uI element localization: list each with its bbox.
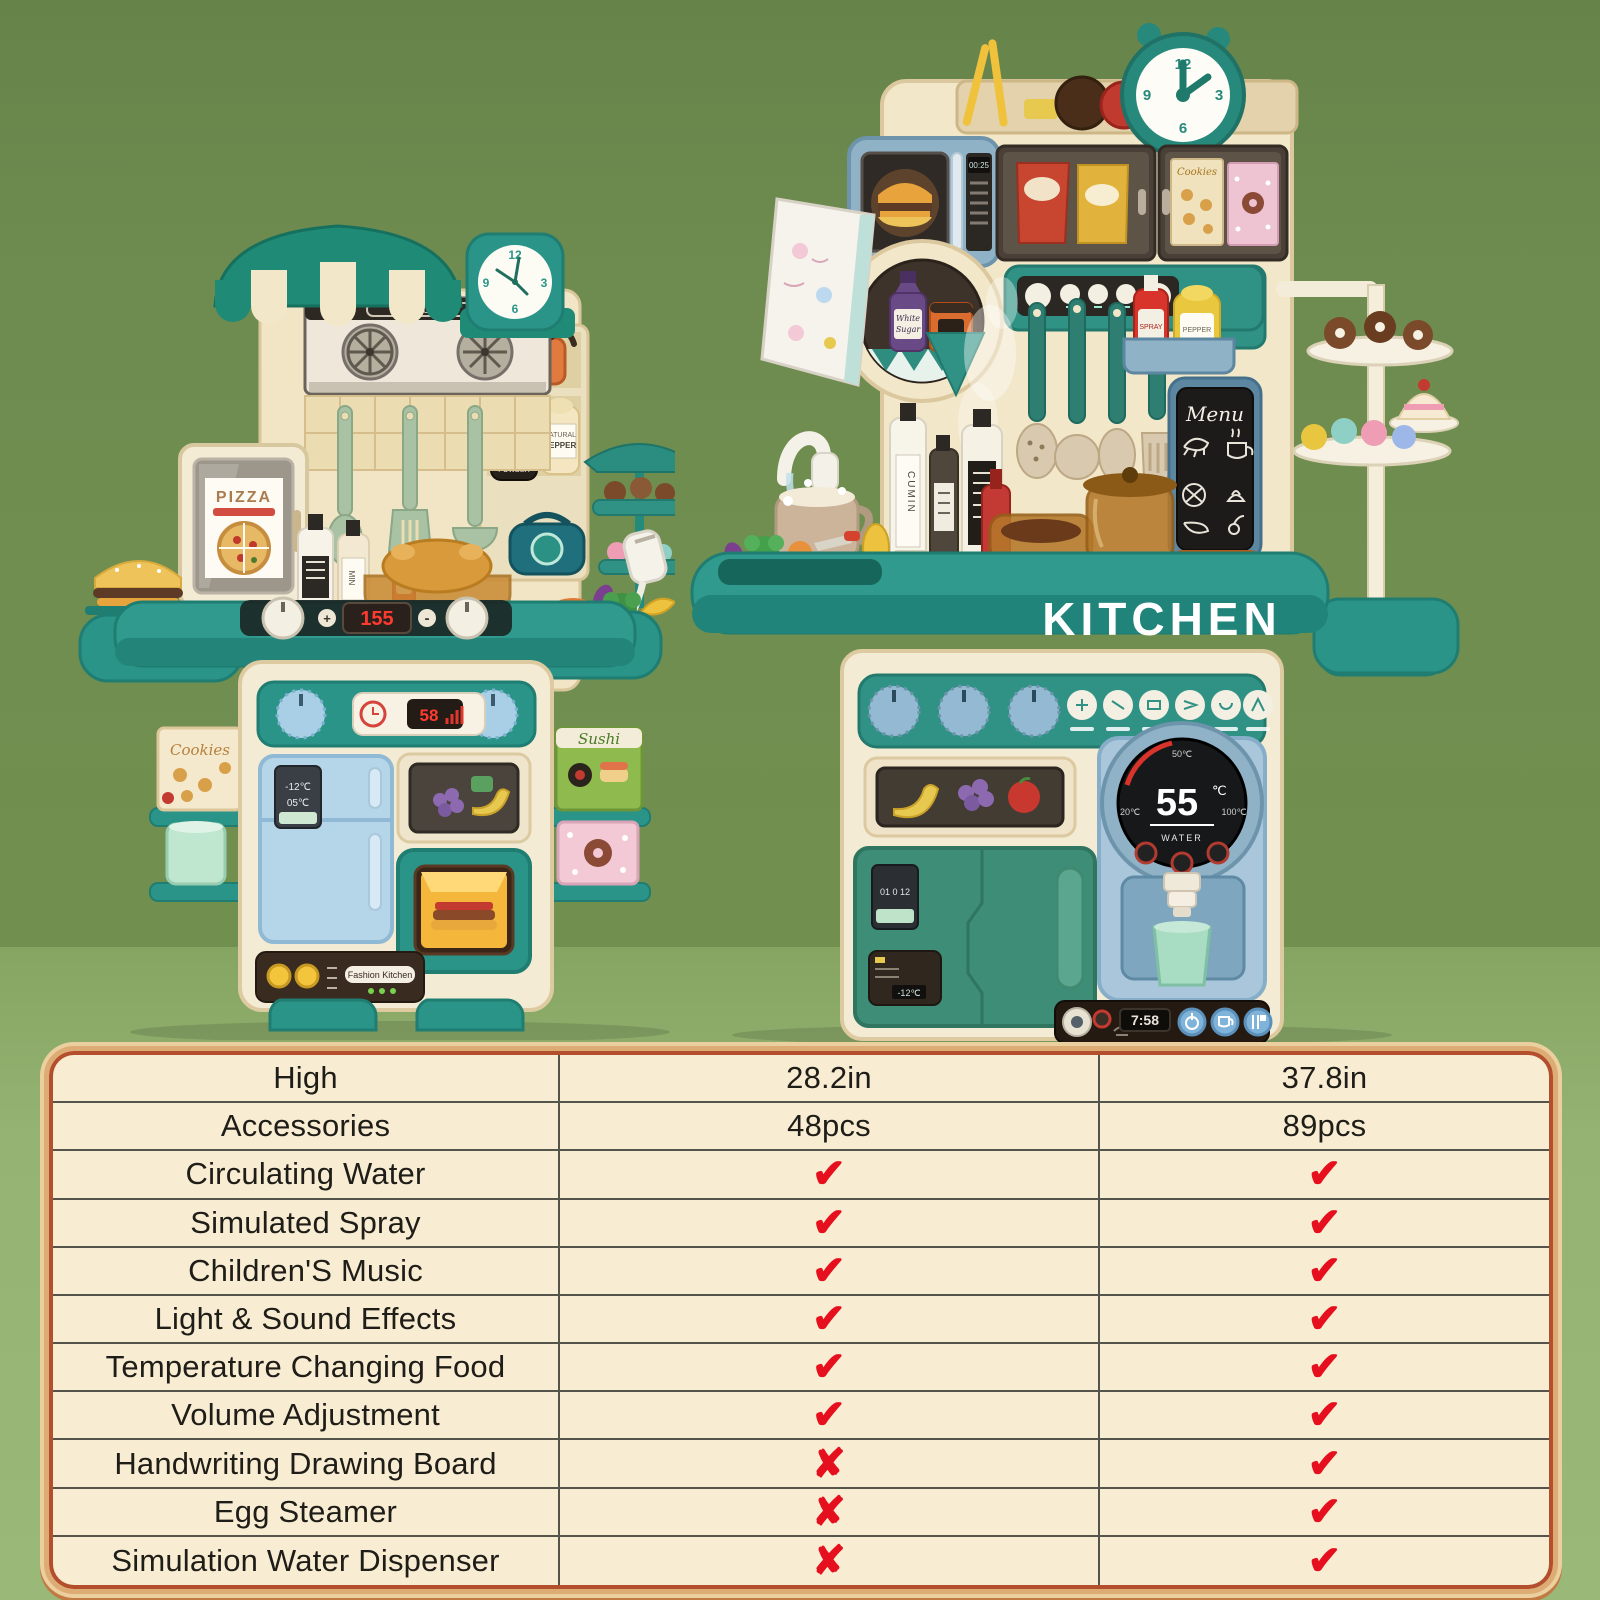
small-dark-bottle	[930, 435, 958, 567]
small-kitchen-value: ✔	[558, 1344, 1098, 1392]
pepper-label: PEPPER	[1183, 327, 1211, 334]
fridge-screen: 01 0 12	[880, 887, 910, 897]
stove-plus-button: +	[323, 611, 331, 626]
table-row-accessories: Accessories 48pcs 89pcs	[53, 1103, 1549, 1151]
cup	[167, 821, 225, 884]
right-side-shelves: Sushi	[548, 728, 650, 901]
timer-display: 58	[420, 706, 439, 725]
clock-3: 3	[541, 276, 548, 290]
spray-label: SPRAY	[1139, 324, 1163, 331]
small-kitchen-value: ✘	[558, 1537, 1098, 1585]
snack-cupboard-left	[997, 146, 1155, 260]
fridge-temp: -12℃	[897, 988, 920, 998]
small-kitchen-value: 28.2in	[558, 1055, 1098, 1103]
fridge: -12℃ 05℃	[260, 756, 392, 942]
clock-3: 3	[1215, 87, 1223, 104]
amber-pot	[1083, 467, 1177, 563]
cookies-box-label: Cookies	[1177, 167, 1217, 178]
bottom-panel: Fashion Kitchen	[256, 952, 424, 1002]
table-row-circulating-water: Circulating Water ✔ ✔	[53, 1151, 1549, 1199]
small-kitchen-value: ✔	[558, 1200, 1098, 1248]
bottom-control-bar: 7:58	[1055, 1001, 1271, 1043]
cumin-bottle: CUMIN	[890, 403, 926, 568]
large-kitchen-value: ✔	[1098, 1537, 1549, 1585]
counter-label: KITCHEN	[1042, 593, 1281, 645]
red-bottle-neck	[990, 469, 1002, 489]
table-row-simulated-spray: Simulated Spray ✔ ✔	[53, 1200, 1549, 1248]
feature-label: Accessories	[53, 1103, 558, 1151]
large-kitchen-value: ✔	[1098, 1440, 1549, 1488]
clock: 12 3 6 9	[460, 234, 575, 338]
fruit-drawer	[865, 758, 1075, 836]
table-row-volume-adjustment: Volume Adjustment ✔ ✔	[53, 1392, 1549, 1440]
feature-label: Circulating Water	[53, 1151, 558, 1199]
small-kitchen-value: ✔	[558, 1392, 1098, 1440]
large-kitchen-value: ✔	[1098, 1200, 1549, 1248]
fan-left	[343, 325, 397, 379]
fridge-temp-bottom: 05℃	[287, 798, 309, 809]
large-kitchen-value: ✔	[1098, 1489, 1549, 1537]
temp-unit: ℃	[1212, 783, 1227, 798]
table-row-water-dispenser: Simulation Water Dispenser ✘ ✔	[53, 1537, 1549, 1585]
feature-label: Egg Steamer	[53, 1489, 558, 1537]
towel	[762, 199, 874, 385]
small-kitchen-value: ✘	[558, 1440, 1098, 1488]
large-toy-kitchen: 12 3 6 9 00:25	[672, 3, 1462, 1043]
table-row-egg-steamer: Egg Steamer ✘ ✔	[53, 1489, 1549, 1537]
menu-board: Menu	[1169, 378, 1261, 560]
table-row-drawing-board: Handwriting Drawing Board ✘ ✔	[53, 1440, 1549, 1488]
small-toy-kitchen: Cookies Sushi	[55, 210, 675, 1040]
stove-minus-button: -	[425, 610, 430, 627]
small-kitchen-value: ✘	[558, 1489, 1098, 1537]
large-kitchen-value: ✔	[1098, 1296, 1549, 1344]
clock-9: 9	[483, 276, 490, 290]
drink-button	[1212, 1009, 1238, 1035]
dessert-tower	[585, 444, 675, 608]
kettle	[510, 515, 584, 574]
feature-label: Temperature Changing Food	[53, 1344, 558, 1392]
power-button	[1179, 1009, 1205, 1035]
awning	[215, 226, 461, 326]
brand-label: Fashion Kitchen	[348, 970, 413, 980]
menu-board-label: Menu	[1185, 402, 1244, 426]
small-kitchen-value: ✔	[558, 1151, 1098, 1199]
cumin-label: CUMIN	[905, 471, 916, 514]
blue-shelf	[1124, 339, 1234, 373]
large-kitchen-value: ✔	[1098, 1248, 1549, 1296]
sushi-box-label: Sushi	[578, 730, 620, 748]
feature-label: Volume Adjustment	[53, 1392, 558, 1440]
right-foot	[417, 1000, 523, 1030]
clock-6: 6	[1179, 120, 1187, 137]
clock-6: 6	[512, 302, 519, 316]
fruit-window	[398, 754, 530, 842]
feature-label: Handwriting Drawing Board	[53, 1440, 558, 1488]
feature-label: Simulated Spray	[53, 1200, 558, 1248]
microwave-display: 00:25	[969, 161, 990, 170]
table-row-childrens-music: Children'S Music ✔ ✔	[53, 1248, 1549, 1296]
feature-label: Light & Sound Effects	[53, 1296, 558, 1344]
temp-value: 55	[1156, 782, 1198, 824]
temp-max-label: 100℃	[1221, 807, 1246, 817]
control-strip: 58	[258, 682, 535, 746]
water-dispenser: 50℃ 55 ℃ 20℃ 100℃ WATER	[1099, 723, 1265, 1000]
sugar-line2: Sugar	[896, 325, 922, 334]
snack-cupboard-right: Cookies	[1159, 146, 1287, 260]
meal-button	[1245, 1009, 1271, 1035]
product-comparison-image: Cookies Sushi	[0, 0, 1600, 1600]
timer-clock: 12 3 6 9	[1122, 23, 1244, 156]
shadow	[130, 1021, 670, 1040]
feature-label: High	[53, 1055, 558, 1103]
donut-box	[558, 822, 638, 884]
clock-9: 9	[1143, 87, 1151, 104]
stove-controls: + 155 -	[240, 598, 512, 638]
pizza-display-box: PIZZA	[180, 445, 307, 607]
temp-top-label: 50℃	[1172, 749, 1192, 759]
large-kitchen-value: ✔	[1098, 1344, 1549, 1392]
comparison-rows: High 28.2in 37.8in Accessories 48pcs 89p…	[53, 1055, 1549, 1585]
dispenser-cup	[1154, 927, 1210, 985]
time-display: 7:58	[1131, 1012, 1159, 1028]
feature-label: Children'S Music	[53, 1248, 558, 1296]
green-fridge: 01 0 12 -12℃	[855, 848, 1095, 1026]
left-side-shelves: Cookies	[150, 728, 252, 901]
table-row-light-sound: Light & Sound Effects ✔ ✔	[53, 1296, 1549, 1344]
sushi-box: Sushi	[556, 728, 642, 810]
large-kitchen-value: 89pcs	[1098, 1103, 1549, 1151]
large-kitchen-value: 37.8in	[1098, 1055, 1549, 1103]
cookies-box: Cookies	[158, 728, 242, 810]
large-kitchen-value: ✔	[1098, 1392, 1549, 1440]
table-row-temp-changing-food: Temperature Changing Food ✔ ✔	[53, 1344, 1549, 1392]
pizza-box-label: PIZZA	[216, 489, 272, 506]
small-kitchen-value: 48pcs	[558, 1103, 1098, 1151]
feature-label: Simulation Water Dispenser	[53, 1537, 558, 1585]
sugar-line1: White	[896, 314, 920, 323]
table-row-high: High 28.2in 37.8in	[53, 1055, 1549, 1103]
sauce-bottle-label: MIN	[347, 571, 356, 586]
cookies-box-label: Cookies	[170, 741, 230, 759]
cake-slice	[1390, 379, 1458, 432]
base-cabinet: 58 -12℃ 05℃	[240, 662, 552, 1030]
small-kitchen-value: ✔	[558, 1296, 1098, 1344]
comparison-table: High 28.2in 37.8in Accessories 48pcs 89p…	[44, 1046, 1558, 1594]
fridge-temp-top: -12℃	[285, 782, 311, 793]
stove-display: 155	[360, 608, 393, 630]
large-kitchen-value: ✔	[1098, 1151, 1549, 1199]
water-label: WATER	[1161, 833, 1203, 843]
small-kitchen-value: ✔	[558, 1248, 1098, 1296]
left-foot	[270, 1000, 376, 1030]
temp-min-label: 20℃	[1120, 807, 1140, 817]
base-cabinet: 01 0 12 -12℃ 50℃ 55 ℃ 20℃ 100℃ WATER	[842, 651, 1282, 1043]
